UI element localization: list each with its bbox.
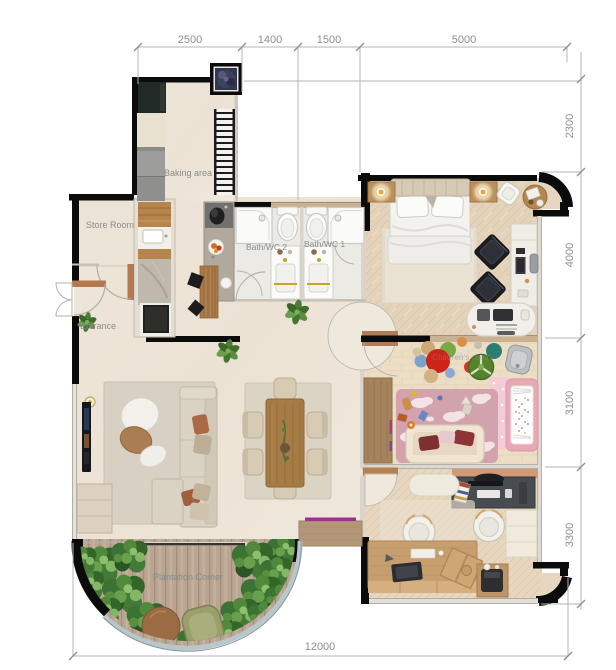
svg-text:Plantation Corner: Plantation Corner — [153, 572, 223, 582]
svg-text:Store Room: Store Room — [86, 220, 134, 230]
svg-text:3100: 3100 — [564, 391, 576, 415]
svg-text:5000: 5000 — [452, 34, 476, 46]
svg-text:1500: 1500 — [317, 34, 341, 46]
svg-text:Children's room: Children's room — [432, 352, 491, 362]
svg-text:1400: 1400 — [258, 34, 282, 46]
svg-text:12000: 12000 — [305, 641, 336, 653]
svg-text:Bath/WC 1: Bath/WC 1 — [304, 239, 345, 249]
svg-text:Entrance: Entrance — [80, 321, 116, 331]
svg-text:Baking area: Baking area — [164, 168, 212, 178]
svg-text:3300: 3300 — [564, 523, 576, 547]
svg-text:Bath/WC 2: Bath/WC 2 — [246, 242, 287, 252]
svg-text:4000: 4000 — [564, 243, 576, 267]
svg-text:2300: 2300 — [564, 114, 576, 138]
svg-text:2500: 2500 — [178, 34, 202, 46]
